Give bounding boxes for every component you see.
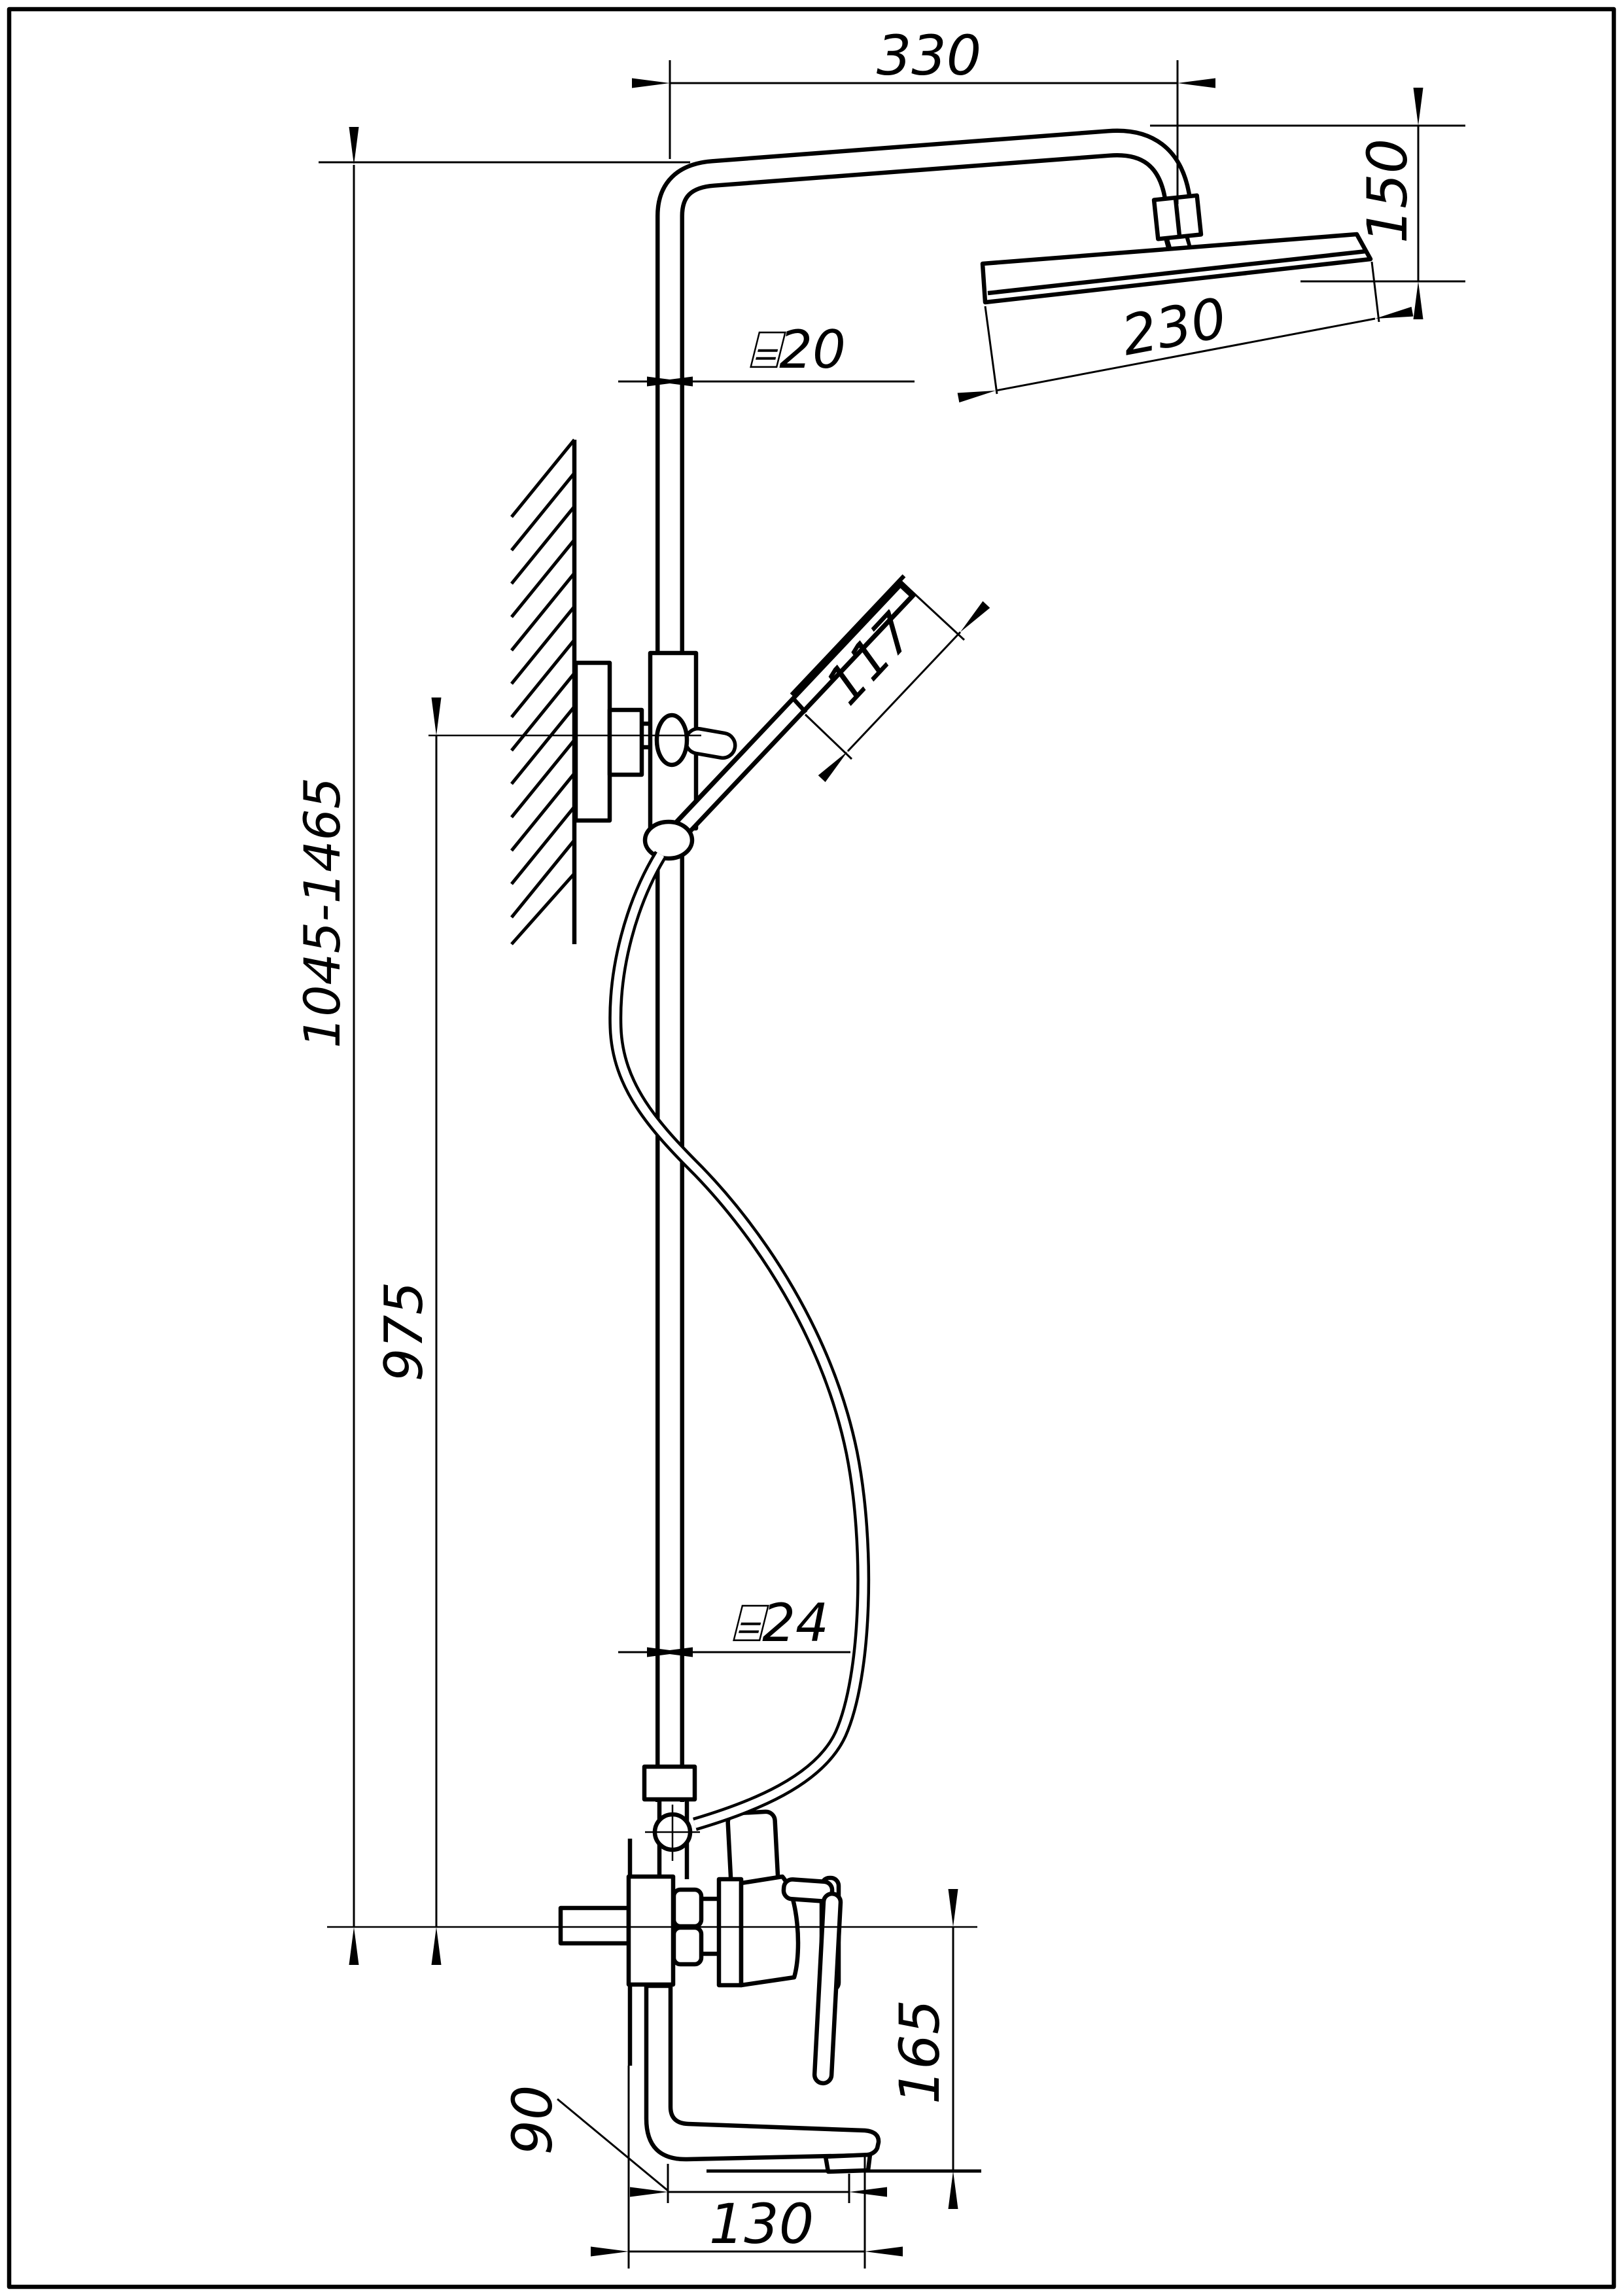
drawing-page: 330 150 230 ⌸20 117 1045-1465 975 ⌸24 16… [0, 0, 1623, 2296]
dim-d20-label: ⌸20 [748, 319, 846, 380]
riser-collar [644, 1767, 695, 1799]
dim-330-label: 330 [877, 24, 981, 88]
hex-nut-facet [674, 1890, 701, 1926]
hose-outlet [645, 1805, 700, 1861]
riser-pipe [670, 143, 1181, 1802]
spout [646, 1986, 879, 2159]
hex-nut-facet [674, 1928, 701, 1964]
dim-230-label: 230 [1117, 285, 1232, 368]
shower-hose [616, 855, 864, 1824]
shower-system-drawing: 330 150 230 ⌸20 117 1045-1465 975 ⌸24 16… [0, 0, 1623, 2296]
dim-975-label: 975 [374, 1282, 434, 1382]
bracket-step [610, 710, 642, 775]
dim-130-label: 130 [709, 2192, 814, 2256]
slider-knob [657, 715, 687, 765]
shower-column [670, 143, 1370, 1806]
dim-165-label: 165 [888, 2000, 952, 2104]
dimension-lines [319, 60, 1465, 2269]
dimension-labels: 330 150 230 ⌸20 117 1045-1465 975 ⌸24 16… [293, 24, 1420, 2256]
bracket-base [576, 663, 610, 821]
dim-90-label: 90 [500, 2085, 565, 2155]
wall-section [512, 440, 574, 944]
aerator [826, 2155, 870, 2172]
hand-shower-holder [645, 822, 692, 858]
mixer-lever-handle [814, 1894, 841, 2084]
dim-d24-label: ⌸24 [731, 1593, 829, 1653]
mixer-assembly [561, 1811, 879, 2172]
supply-stub [561, 1908, 629, 1943]
dim-117-label: 117 [814, 602, 926, 716]
dim-1045-1465-label: 1045-1465 [293, 777, 351, 1048]
escutcheon [719, 1879, 741, 1985]
mounting-plate [629, 1877, 673, 1985]
wall-hatching [512, 440, 574, 944]
dim-150-label: 150 [1355, 139, 1420, 243]
